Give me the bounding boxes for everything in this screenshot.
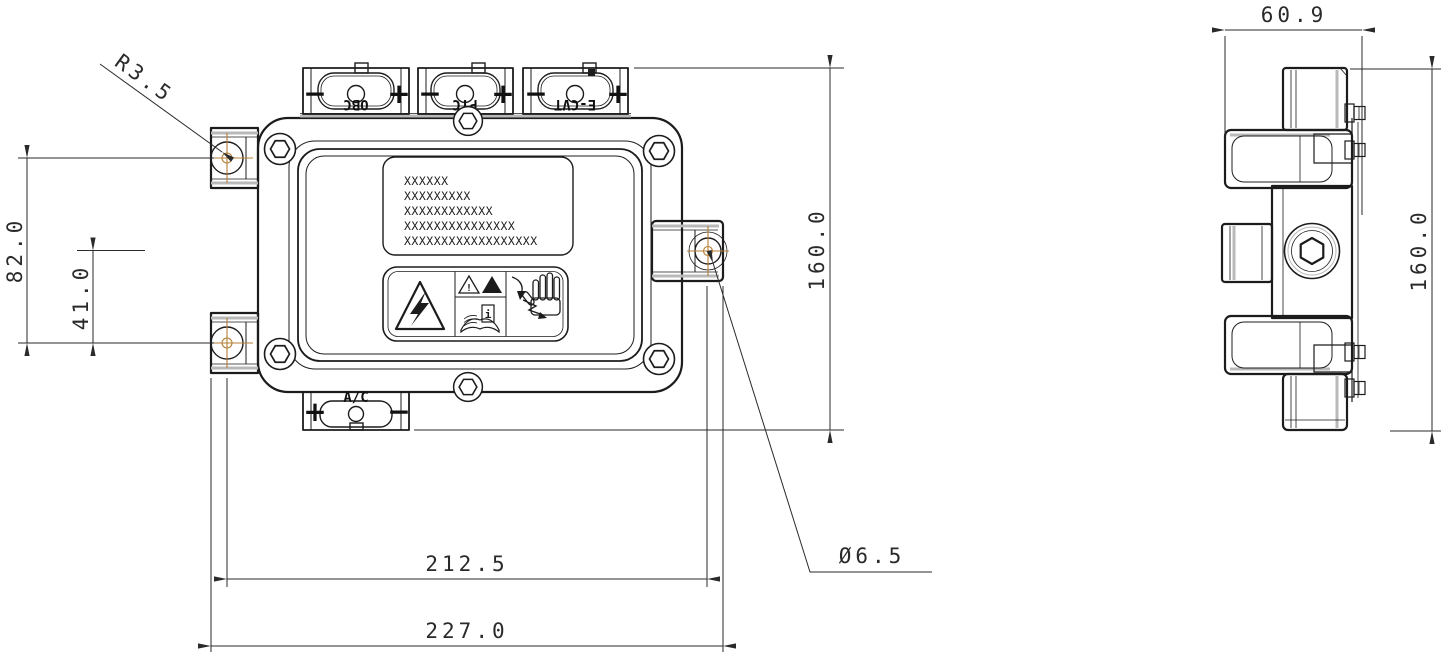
ecvt-minus-sign: − (524, 77, 547, 110)
ptc-minus-sign: − (418, 77, 441, 110)
ac-plus-sign: + (303, 395, 326, 428)
side-body (1272, 186, 1352, 318)
dim-hole-diameter: Ø6.5 (713, 263, 932, 572)
dim-227-text: 227.0 (425, 619, 508, 643)
corner-bolt (644, 344, 675, 375)
nameplate: XXXXXX XXXXXXXXX XXXXXXXXXXXX XXXXXXXXXX… (383, 157, 573, 255)
nameplate-line-4: XXXXXXXXXXXXXXX (404, 219, 515, 233)
svg-text:!: ! (489, 283, 495, 294)
ecvt-plus-sign: + (606, 77, 629, 110)
warning-triangle-icon: ! (459, 276, 479, 294)
corner-bolt (265, 339, 296, 370)
connector-key-mark (588, 69, 595, 76)
ac-label: A/C (343, 390, 368, 406)
ac-minus-sign: − (387, 395, 410, 428)
dim-corner-radius: R3.5 (100, 49, 222, 152)
obc-minus-sign: − (303, 77, 326, 110)
warning-label: ! ! i (383, 267, 568, 341)
corner-bolt (265, 134, 296, 165)
front-view: − + OBC − + PTC − + E-CVT (203, 63, 729, 430)
dim-160-side: 160.0 (1350, 69, 1441, 431)
svg-text:!: ! (466, 283, 472, 294)
side-left-block (1222, 224, 1272, 282)
dim-dia-6-5-text: Ø6.5 (839, 544, 906, 568)
obc-label: OBC (343, 96, 368, 112)
connector-pin-hole (349, 407, 364, 422)
engineering-drawing-canvas: − + OBC − + PTC − + E-CVT (0, 0, 1446, 653)
hand-shock-hazard-icon (512, 273, 560, 319)
dim-41-text: 41.0 (69, 264, 93, 331)
side-top-connector (1283, 68, 1347, 130)
bracket-right (652, 221, 729, 281)
high-voltage-icon (396, 282, 444, 329)
warning-triangle-filled-icon: ! (482, 276, 502, 294)
dim-60-9: 60.9 (1225, 3, 1362, 215)
ecvt-label: E-CVT (554, 96, 596, 112)
side-bottom-connector (1283, 374, 1347, 430)
side-bolt (1345, 343, 1365, 361)
connector-obc: − + OBC (303, 63, 411, 114)
dim-41: 41.0 (69, 251, 145, 344)
top-center-bolt (454, 107, 483, 136)
nameplate-line-1: XXXXXX (404, 174, 449, 188)
nameplate-line-5: XXXXXXXXXXXXXXXXXX (404, 234, 538, 248)
engineering-drawing: − + OBC − + PTC − + E-CVT (0, 0, 1446, 653)
boss-circle (1285, 224, 1340, 279)
connector-ecvt: − + E-CVT (523, 63, 630, 114)
svg-text:i: i (485, 308, 492, 321)
dim-212: 212.5 (227, 286, 707, 587)
dim-60-9-text: 60.9 (1261, 3, 1328, 27)
nameplate-line-2: XXXXXXXXX (404, 189, 471, 203)
dim-82-text: 82.0 (3, 217, 27, 284)
dim-212-text: 212.5 (425, 552, 508, 576)
connector-ac: + − A/C (303, 390, 411, 430)
ptc-plus-sign: + (491, 77, 514, 110)
side-view (1222, 68, 1365, 430)
bottom-center-bolt (454, 373, 483, 402)
nameplate-line-3: XXXXXXXXXXXX (404, 204, 493, 218)
hex-socket-bolt (1301, 238, 1324, 264)
dim-160-front-text: 160.0 (805, 207, 829, 290)
dim-160-side-text: 160.0 (1407, 208, 1431, 291)
corner-bolt (644, 136, 675, 167)
obc-plus-sign: + (387, 77, 410, 110)
read-manual-icon: i (461, 305, 499, 332)
side-top-bracket (1225, 130, 1352, 188)
side-bottom-bracket (1225, 316, 1352, 374)
